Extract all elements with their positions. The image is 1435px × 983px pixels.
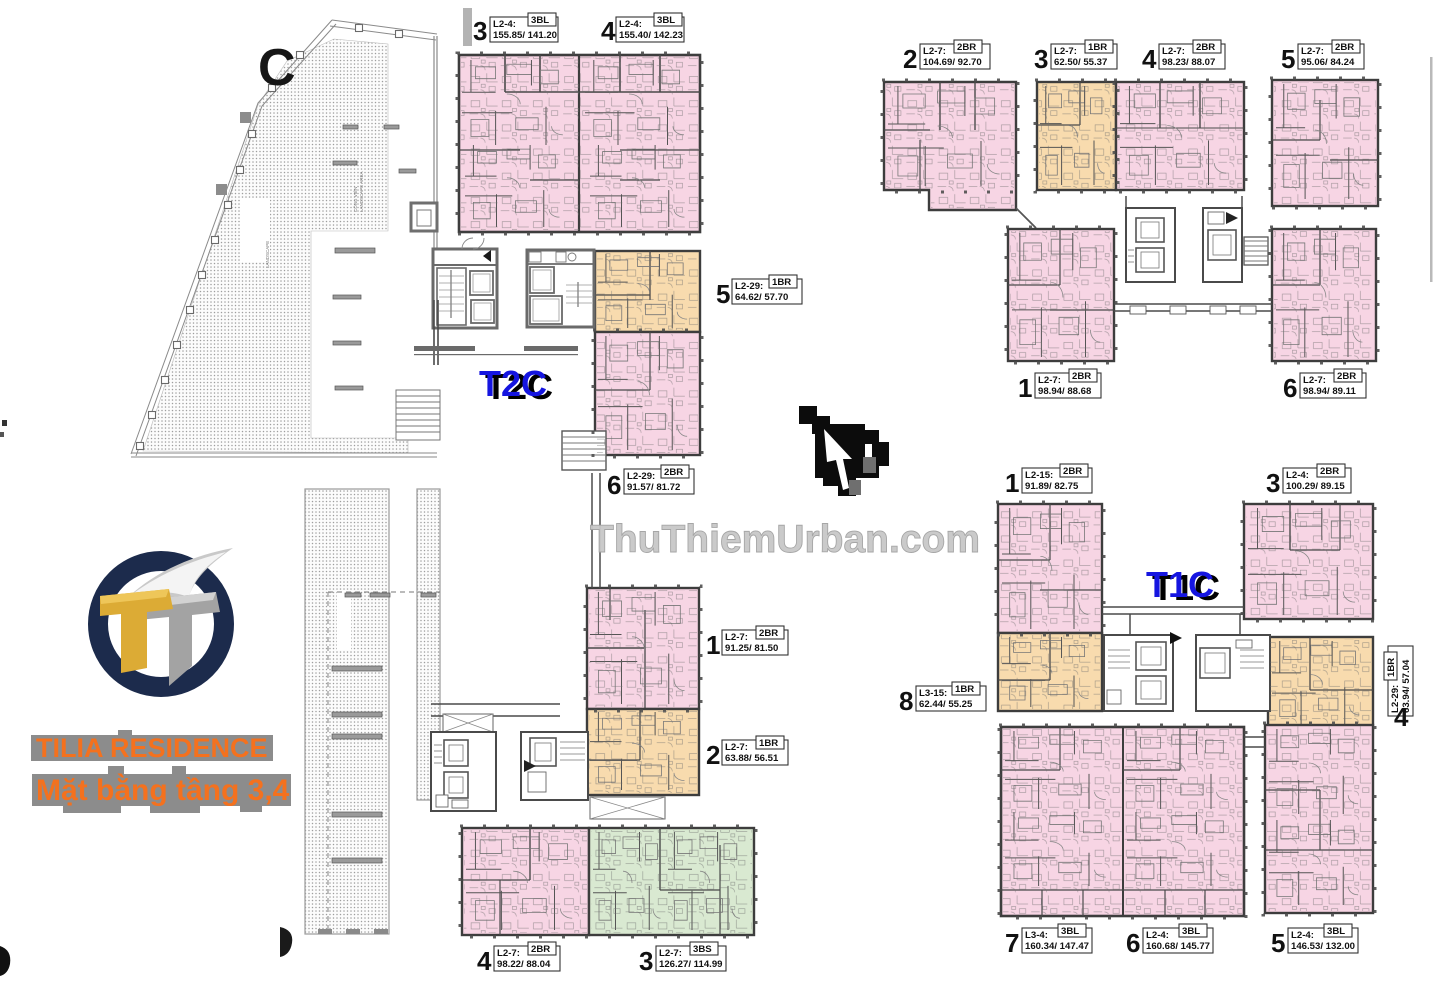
svg-text:3BL: 3BL [1061, 926, 1079, 937]
svg-text:98.22/ 88.04: 98.22/ 88.04 [497, 959, 551, 970]
svg-text:L3-15:: L3-15: [919, 688, 947, 699]
svg-text:L2-15:: L2-15: [1025, 470, 1053, 481]
svg-text:7: 7 [1005, 928, 1019, 958]
svg-text:L2-4:: L2-4: [1291, 930, 1314, 941]
svg-text:C: C [258, 39, 296, 97]
svg-text:L2-7:: L2-7: [497, 948, 520, 959]
svg-text:6: 6 [1126, 928, 1140, 958]
svg-text:L2-7:: L2-7: [1038, 375, 1061, 386]
svg-text:1: 1 [706, 630, 720, 660]
svg-text:L2-7:: L2-7: [725, 632, 748, 643]
svg-text:95.06/ 84.24: 95.06/ 84.24 [1301, 57, 1355, 68]
svg-text:L3-4:: L3-4: [1025, 930, 1048, 941]
svg-text:3BS: 3BS [693, 944, 712, 955]
svg-text:1BR: 1BR [1386, 658, 1397, 677]
svg-text:Mặt bằng tầng 3,4: Mặt bằng tầng 3,4 [36, 773, 290, 807]
svg-text:2BR: 2BR [1337, 371, 1356, 382]
svg-text:L2-7:: L2-7: [1301, 46, 1324, 57]
svg-text:ThuThiemUrban.com: ThuThiemUrban.com [590, 518, 980, 561]
svg-text:2BR: 2BR [1063, 466, 1082, 477]
svg-text:L2-7:: L2-7: [1054, 46, 1077, 57]
svg-text:104.69/ 92.70: 104.69/ 92.70 [923, 57, 982, 68]
svg-text:2BR: 2BR [1320, 466, 1339, 477]
svg-text:2BR: 2BR [759, 628, 778, 639]
svg-text:3: 3 [473, 16, 487, 46]
svg-text:L2-29:: L2-29: [627, 471, 655, 482]
svg-text:6: 6 [607, 470, 621, 500]
svg-text:L2-7:: L2-7: [725, 742, 748, 753]
svg-text:126.27/ 114.99: 126.27/ 114.99 [659, 959, 723, 970]
svg-text:TILIA RESIDENCE: TILIA RESIDENCE [36, 733, 268, 763]
svg-text:146.53/ 132.00: 146.53/ 132.00 [1291, 941, 1355, 952]
svg-text:LANDSCAPE AREA: LANDSCAPE AREA [359, 171, 364, 212]
svg-text:L2-7:: L2-7: [923, 46, 946, 57]
svg-text:63.88/ 56.51: 63.88/ 56.51 [725, 753, 779, 764]
svg-text:155.40/ 142.23: 155.40/ 142.23 [619, 30, 683, 41]
svg-text:2BR: 2BR [957, 42, 976, 53]
svg-text:1BR: 1BR [759, 738, 778, 749]
svg-text:1: 1 [1018, 373, 1032, 403]
svg-text:L2-7:: L2-7: [1303, 375, 1326, 386]
svg-text:4: 4 [477, 946, 492, 976]
svg-text:91.25/ 81.50: 91.25/ 81.50 [725, 643, 778, 654]
svg-text:L2-7:: L2-7: [1162, 46, 1185, 57]
svg-text:CÔNG VIÊN: CÔNG VIÊN [351, 187, 358, 212]
svg-text:3: 3 [639, 946, 653, 976]
svg-text:T2C: T2C [479, 363, 547, 404]
svg-text:5: 5 [716, 279, 730, 309]
svg-text:L2-4:: L2-4: [1146, 930, 1169, 941]
svg-text:1BR: 1BR [955, 684, 974, 695]
svg-text:5: 5 [1281, 44, 1295, 74]
svg-text:4: 4 [601, 16, 616, 46]
svg-text:155.85/ 141.20: 155.85/ 141.20 [493, 30, 557, 41]
svg-text:2BR: 2BR [664, 467, 683, 478]
svg-text:4: 4 [1142, 44, 1157, 74]
svg-text:98.94/ 89.11: 98.94/ 89.11 [1303, 386, 1356, 397]
svg-text:L2-4:: L2-4: [619, 19, 642, 30]
svg-text:1BR: 1BR [772, 277, 791, 288]
svg-text:T1C: T1C [1146, 564, 1214, 605]
svg-text:160.68/ 145.77: 160.68/ 145.77 [1146, 941, 1210, 952]
svg-text:62.50/ 55.37: 62.50/ 55.37 [1054, 57, 1107, 68]
svg-text:64.62/ 57.70: 64.62/ 57.70 [735, 292, 788, 303]
svg-text:100.29/ 89.15: 100.29/ 89.15 [1286, 481, 1345, 492]
svg-text:LANDSCAPE: LANDSCAPE [265, 241, 270, 268]
svg-text:3: 3 [1266, 468, 1280, 498]
svg-text:2BR: 2BR [1335, 42, 1354, 53]
svg-text:L2-4:: L2-4: [493, 19, 516, 30]
svg-text:L2-7:: L2-7: [659, 948, 682, 959]
svg-text:2BR: 2BR [1072, 371, 1091, 382]
svg-text:160.34/ 147.47: 160.34/ 147.47 [1025, 941, 1089, 952]
svg-text:6: 6 [1283, 373, 1297, 403]
svg-text:62.44/ 55.25: 62.44/ 55.25 [919, 699, 973, 710]
svg-text:L2-29:: L2-29: [735, 281, 763, 292]
svg-text:2BR: 2BR [1196, 42, 1215, 53]
svg-text:3: 3 [1034, 44, 1048, 74]
svg-text:1: 1 [1005, 468, 1019, 498]
svg-text:3BL: 3BL [531, 15, 549, 26]
svg-text:5: 5 [1271, 928, 1285, 958]
svg-text:91.89/ 82.75: 91.89/ 82.75 [1025, 481, 1079, 492]
svg-text:3BL: 3BL [657, 15, 675, 26]
svg-text:2BR: 2BR [531, 944, 550, 955]
svg-text:98.94/ 88.68: 98.94/ 88.68 [1038, 386, 1092, 397]
svg-text:3BL: 3BL [1182, 926, 1200, 937]
svg-text:4: 4 [1394, 702, 1409, 732]
svg-text:1BR: 1BR [1088, 42, 1107, 53]
svg-text:91.57/ 81.72: 91.57/ 81.72 [627, 482, 680, 493]
svg-text:8: 8 [899, 686, 913, 716]
svg-text:2: 2 [903, 44, 917, 74]
svg-text:L2-4:: L2-4: [1286, 470, 1309, 481]
svg-text:2: 2 [706, 740, 720, 770]
svg-text:3BL: 3BL [1327, 926, 1345, 937]
svg-text:98.23/ 88.07: 98.23/ 88.07 [1162, 57, 1215, 68]
